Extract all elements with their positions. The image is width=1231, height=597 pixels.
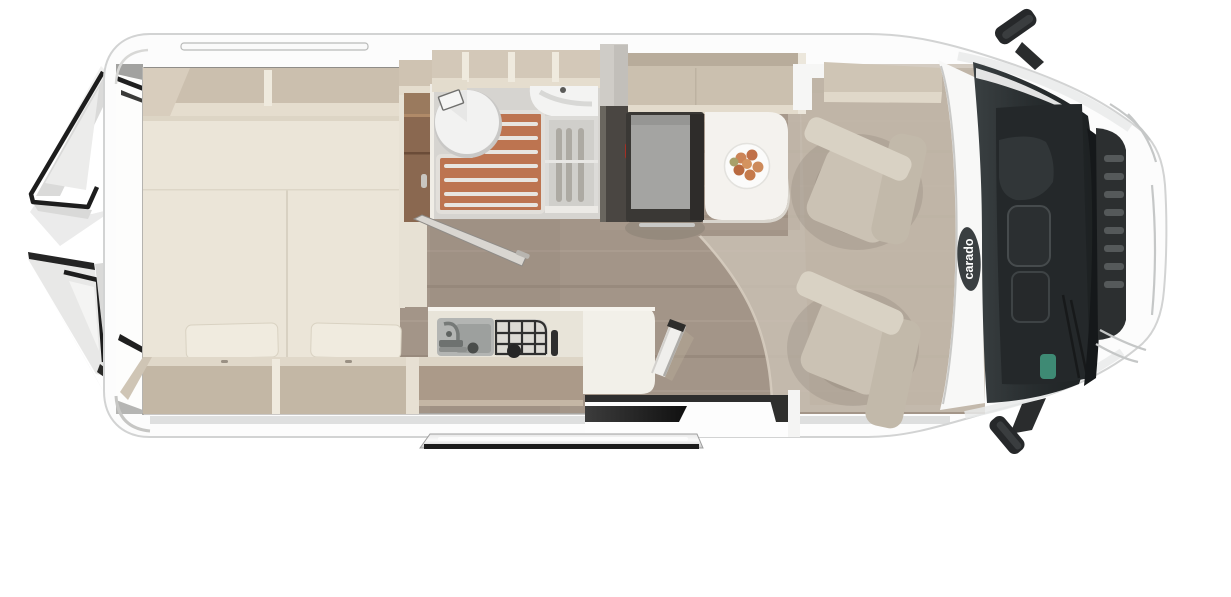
svg-text:carado: carado — [962, 238, 976, 279]
